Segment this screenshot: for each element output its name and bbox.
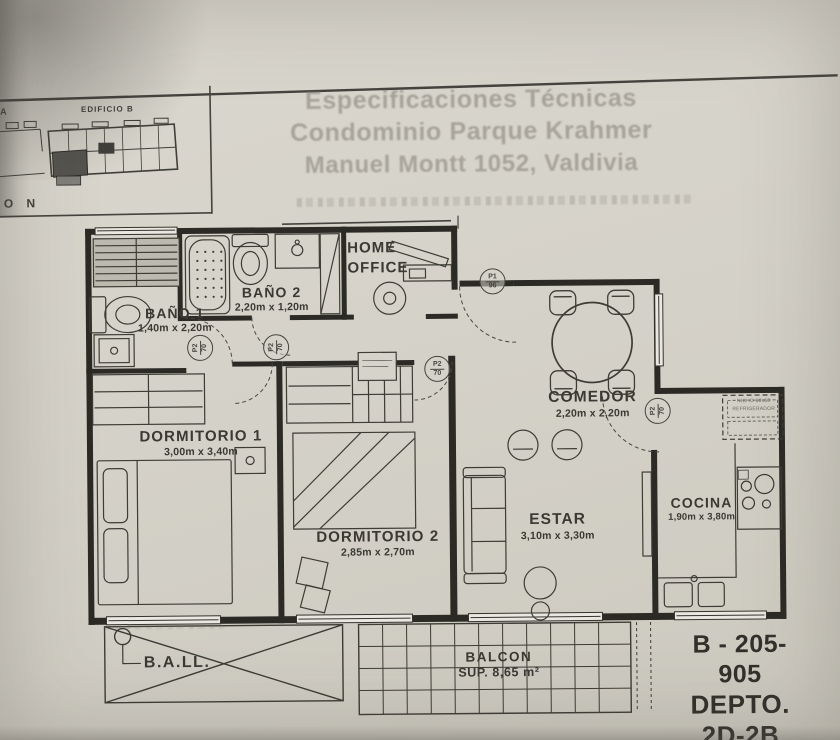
room-name: COMEDOR: [548, 388, 637, 407]
key-plan-highlighted-unit: [52, 150, 87, 177]
condo-name: Condominio Parque Krahmer: [290, 116, 653, 148]
key-plan-label-edificio-b: EDIFICIO B: [81, 104, 134, 113]
bed-bedroom2: [293, 432, 417, 613]
door-width: 70: [657, 404, 666, 418]
door-tag-p2-cocina: P2 70: [645, 398, 671, 424]
room-name: B.A.LL.: [144, 654, 211, 672]
bath2-door-leaf: [320, 234, 340, 314]
printed-document-layer: Especificaciones Técnicas Condominio Par…: [0, 0, 840, 740]
door-tag-p2-dormitorio2: P2 70: [424, 356, 450, 382]
faded-annotation: [105, 624, 225, 630]
room-label-dormitorio1: DORMITORIO 1 3,00m x 3,40m: [139, 427, 262, 458]
fridge-nook-note: NICHO 60x60 REFRIGERADOR: [725, 398, 783, 414]
door-type: P2: [192, 344, 200, 353]
room-name: BAÑO 2: [235, 284, 309, 301]
door-tag-p2-bano2: P2 70: [263, 334, 289, 360]
dining-fixtures: [550, 290, 635, 395]
fridge-note-line2: REFRIGERADOR: [725, 405, 783, 413]
dining-chairs: [550, 290, 635, 395]
key-plan-building-b: [0, 118, 178, 186]
balcony-boundary-dashes: [637, 622, 652, 710]
closet-note-box: [358, 352, 396, 380]
room-label-comedor: COMEDOR 2,20m x 2,20m: [548, 388, 637, 420]
photographed-floor-plan-page: Especificaciones Técnicas Condominio Par…: [0, 0, 840, 740]
key-plan-core: [98, 143, 114, 154]
door-width: 96: [486, 281, 500, 290]
room-name: DORMITORIO 1: [139, 427, 262, 445]
laundry-closet: [93, 238, 179, 287]
room-name: BALCON: [458, 649, 539, 665]
room-label-estar: ESTAR 3,10m x 3,30m: [521, 510, 595, 542]
room-name-line2: OFFICE: [347, 258, 408, 279]
door-tag-p2-bano1: P2 70: [187, 335, 213, 361]
room-dims: 1,40m x 2,20m: [138, 322, 212, 335]
room-dims: 1,90m x 3,80m: [668, 511, 735, 523]
room-name-line1: HOME: [347, 238, 408, 259]
bedroom2-fixtures: [286, 352, 416, 613]
room-label-bano1: BAÑO 1 1,40m x 2,20m: [138, 305, 212, 335]
bathroom1-fixtures: [89, 238, 180, 367]
door-tag-p1-entry: P1 96: [479, 268, 505, 294]
kitchen-sink: [664, 575, 724, 607]
closet-bedroom1: [92, 374, 204, 425]
unit-number: DEPTO. 2D-2B: [689, 689, 793, 740]
door-type: P2: [268, 343, 276, 352]
door-width: 70: [430, 368, 444, 377]
spec-title: Especificaciones Técnicas: [305, 84, 637, 116]
unit-info-block: B - 205-905 DEPTO. 2D-2B 67,85 m²: [688, 630, 792, 740]
sofa: [463, 467, 506, 583]
key-plan-label-on: O N: [4, 196, 40, 210]
entry-door-swing: [460, 286, 516, 342]
room-dims: 2,20m x 1,20m: [235, 301, 309, 314]
room-dims: 3,10m x 3,30m: [521, 529, 595, 542]
room-label-bano2: BAÑO 2 2,20m x 1,20m: [235, 284, 309, 314]
door-type: P2: [433, 361, 442, 369]
room-dims: SUP. 8,65 m²: [458, 665, 539, 680]
condo-address: Manuel Montt 1052, Valdivia: [305, 149, 639, 180]
office-chair: [374, 282, 406, 314]
room-dims: 2,85m x 2,70m: [316, 546, 439, 559]
key-plan-label-a: A: [0, 107, 7, 117]
door-width: 70: [200, 341, 209, 355]
ball-terrace: [105, 625, 344, 703]
side-table: [524, 567, 556, 599]
bathtub: [185, 236, 230, 314]
vanity-sink-bath2: [275, 234, 319, 268]
toilet-bath2: [232, 234, 268, 284]
room-dims: 3,00m x 3,40m: [140, 445, 263, 458]
bedroom1-fixtures: [92, 373, 266, 604]
tv-unit: [642, 472, 652, 556]
door-width: 70: [276, 340, 285, 354]
door-type: P2: [649, 407, 657, 416]
shower-bath1: [94, 334, 134, 366]
room-label-cocina: COCINA 1,90m x 3,80m: [668, 494, 735, 523]
key-plan-neighbor-building-a: [0, 121, 45, 176]
room-name: DORMITORIO 2: [316, 528, 439, 546]
unit-code: B - 205-905: [688, 630, 792, 690]
bedroom1-door-swing: [232, 363, 272, 403]
room-name: BAÑO 1: [138, 305, 212, 322]
door-type: P1: [488, 273, 497, 281]
room-dims: 2,20m x 2,20m: [548, 407, 637, 420]
room-label-home-office: HOME OFFICE: [347, 238, 408, 279]
room-label-dormitorio2: DORMITORIO 2 2,85m x 2,70m: [316, 528, 439, 559]
room-name: ESTAR: [521, 510, 595, 529]
room-label-balcon: BALCON SUP. 8,65 m²: [458, 649, 540, 680]
room-label-ball: B.A.LL.: [144, 654, 211, 673]
armchair-2: [552, 430, 582, 460]
room-name: COCINA: [668, 494, 735, 511]
armchair-1: [508, 430, 538, 460]
cooktop: [737, 467, 782, 529]
double-bed: [97, 460, 232, 605]
